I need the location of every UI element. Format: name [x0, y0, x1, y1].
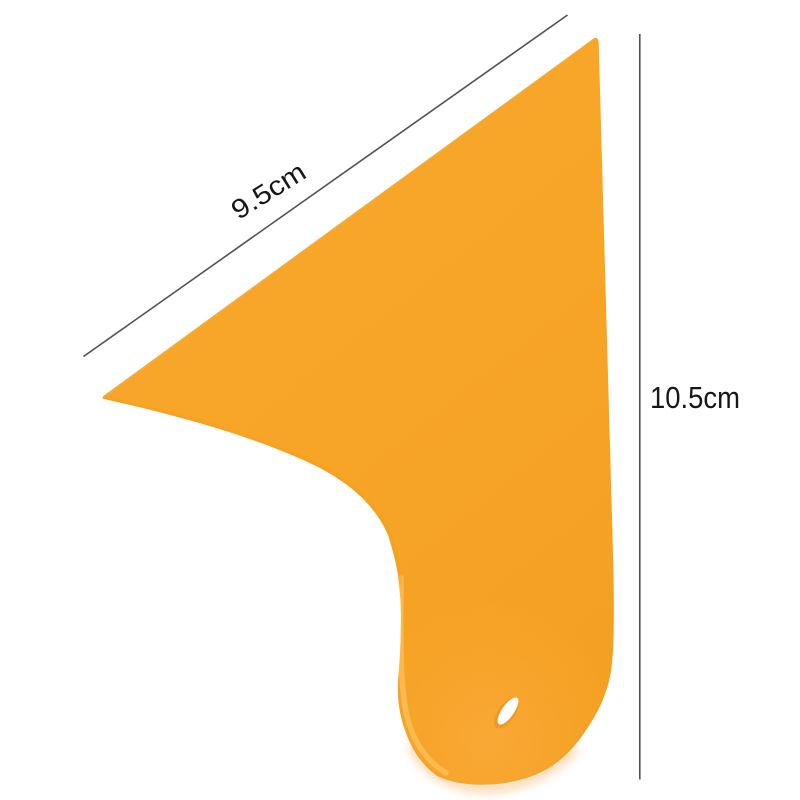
svg-text:10.5cm: 10.5cm [650, 380, 740, 415]
svg-text:9.5cm: 9.5cm [226, 156, 311, 225]
